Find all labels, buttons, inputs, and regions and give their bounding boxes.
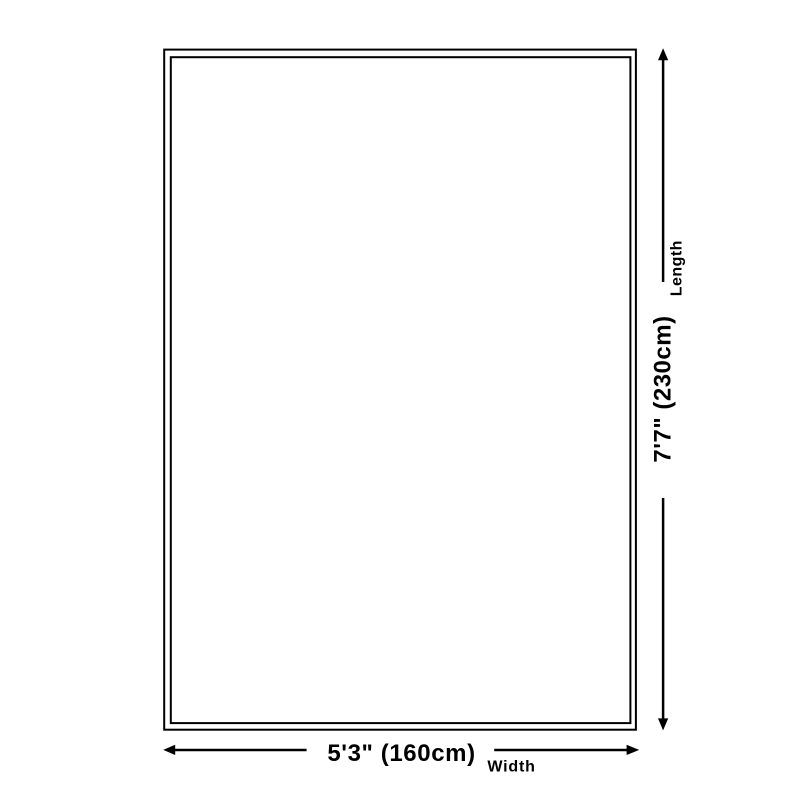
svg-text:Width: Width — [487, 759, 535, 776]
svg-text:7'7" (230cm): 7'7" (230cm) — [649, 315, 676, 462]
svg-text:5'3" (160cm): 5'3" (160cm) — [327, 740, 475, 767]
svg-text:Length: Length — [669, 240, 686, 296]
